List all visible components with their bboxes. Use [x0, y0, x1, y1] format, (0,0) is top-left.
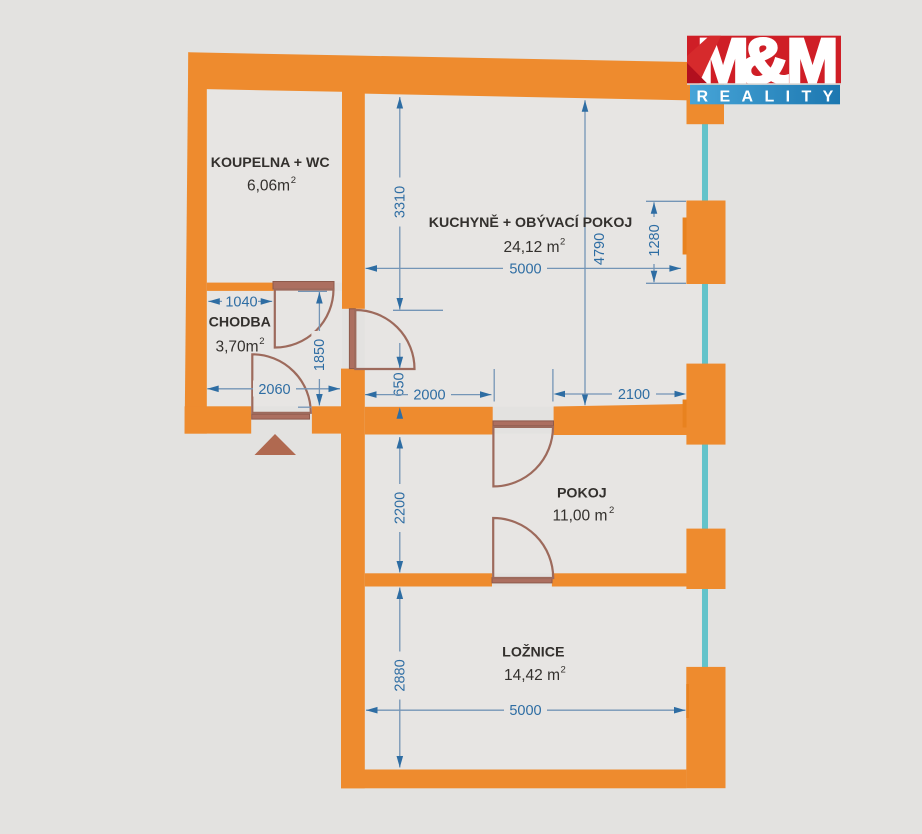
svg-text:24,12 m: 24,12 m [504, 239, 560, 256]
svg-text:2: 2 [561, 665, 566, 676]
svg-text:11,00 m: 11,00 m [553, 508, 608, 525]
svg-text:2000: 2000 [413, 388, 445, 404]
svg-text:LOŽNICE: LOŽNICE [502, 642, 564, 660]
svg-text:2: 2 [609, 505, 614, 516]
svg-text:1280: 1280 [647, 224, 663, 256]
svg-text:CHODBA: CHODBA [209, 315, 271, 331]
svg-text:2: 2 [259, 336, 264, 347]
svg-text:2: 2 [291, 175, 296, 186]
svg-text:4790: 4790 [592, 233, 608, 265]
svg-text:2: 2 [560, 236, 565, 247]
svg-text:1850: 1850 [312, 339, 328, 371]
svg-text:14,42 m: 14,42 m [504, 667, 560, 684]
svg-text:2880: 2880 [392, 659, 408, 691]
svg-text:REALITY: REALITY [697, 88, 845, 105]
svg-text:5000: 5000 [509, 262, 541, 278]
svg-text:2060: 2060 [258, 382, 290, 398]
svg-text:KUCHYNĚ + OBÝVACÍ POKOJ: KUCHYNĚ + OBÝVACÍ POKOJ [429, 213, 633, 231]
svg-text:2200: 2200 [392, 492, 408, 524]
svg-text:POKOJ: POKOJ [557, 486, 607, 502]
svg-text:KOUPELNA + WC: KOUPELNA + WC [211, 155, 330, 171]
svg-text:3310: 3310 [392, 186, 408, 218]
svg-text:5000: 5000 [509, 703, 541, 719]
svg-text:2100: 2100 [618, 387, 650, 403]
svg-text:1040: 1040 [225, 294, 257, 310]
svg-text:3,70m: 3,70m [216, 338, 259, 355]
svg-text:650: 650 [391, 372, 407, 396]
svg-text:6,06m: 6,06m [247, 178, 290, 195]
